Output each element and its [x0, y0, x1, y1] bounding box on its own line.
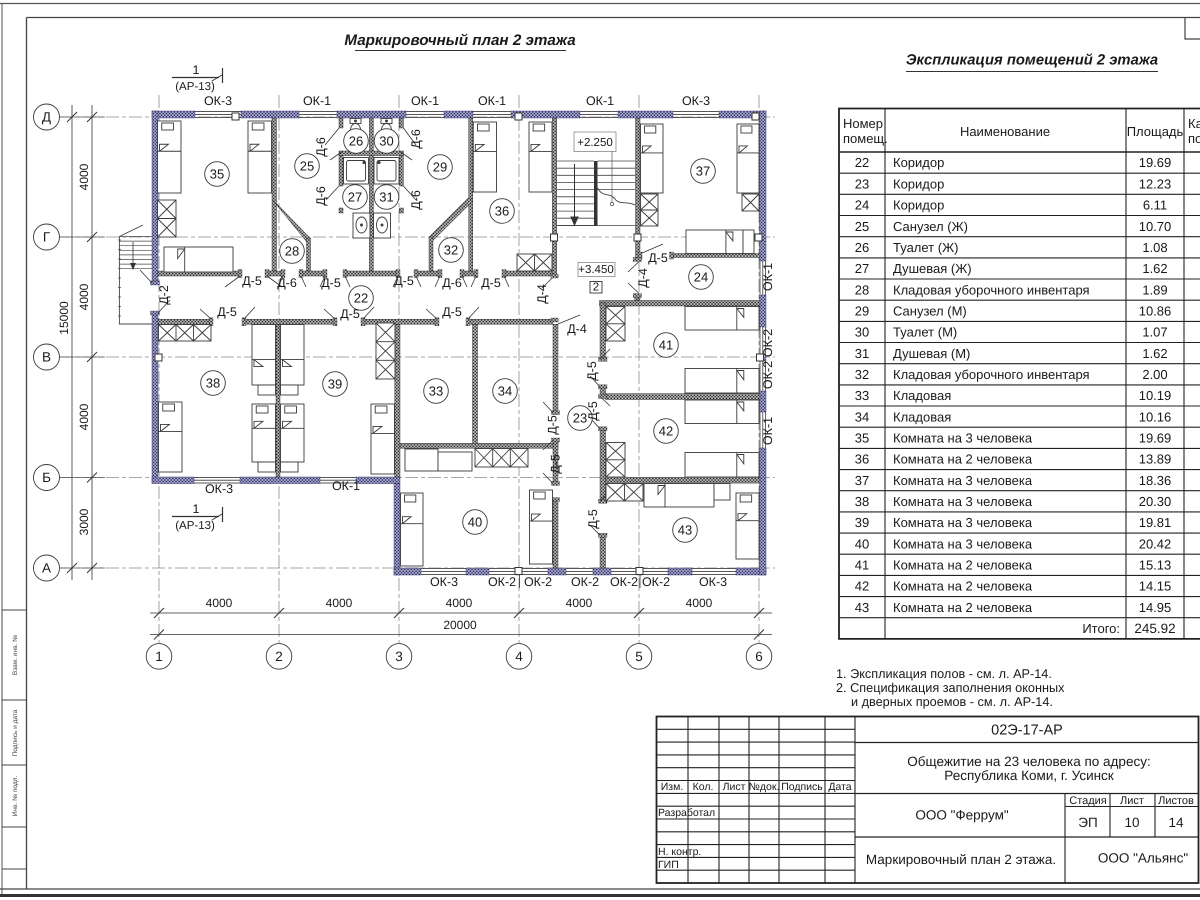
- svg-text:25: 25: [300, 159, 314, 174]
- svg-text:ОК-1: ОК-1: [478, 94, 506, 108]
- svg-text:4000: 4000: [446, 596, 473, 610]
- svg-text:19.69: 19.69: [1139, 155, 1172, 170]
- svg-text:34: 34: [855, 409, 869, 424]
- svg-text:33: 33: [855, 388, 869, 403]
- svg-text:Душевая (М): Душевая (М): [893, 346, 970, 361]
- svg-text:Маркировочный план 2 этажа: Маркировочный план 2 этажа: [344, 32, 575, 49]
- svg-text:Н. контр.: Н. контр.: [658, 846, 701, 858]
- svg-text:ОК-2: ОК-2: [761, 361, 775, 389]
- svg-text:по: по: [1188, 131, 1200, 146]
- svg-text:Дата: Дата: [828, 781, 851, 793]
- svg-text:Кладовая уборочного инвентаря: Кладовая уборочного инвентаря: [893, 282, 1090, 297]
- svg-text:ОК-2: ОК-2: [642, 575, 670, 589]
- svg-text:23: 23: [855, 176, 869, 191]
- svg-text:1: 1: [193, 502, 200, 516]
- svg-text:Д: Д: [42, 110, 51, 125]
- svg-text:25: 25: [855, 219, 869, 234]
- svg-text:1.07: 1.07: [1142, 325, 1167, 340]
- svg-text:43: 43: [855, 600, 869, 615]
- svg-text:Коридор: Коридор: [893, 176, 944, 191]
- svg-text:32: 32: [855, 367, 869, 382]
- svg-text:32: 32: [444, 243, 458, 258]
- svg-text:Маркировочный план 2 этажа.: Маркировочный план 2 этажа.: [866, 852, 1056, 867]
- svg-text:4000: 4000: [566, 596, 593, 610]
- svg-text:Кладовая: Кладовая: [893, 388, 951, 403]
- svg-text:33: 33: [429, 384, 443, 399]
- svg-text:Комната на 2 человека: Комната на 2 человека: [893, 579, 1033, 594]
- svg-text:Разработал: Разработал: [658, 807, 715, 819]
- svg-text:37: 37: [855, 473, 869, 488]
- svg-text:1.62: 1.62: [1142, 261, 1167, 276]
- svg-text:20.30: 20.30: [1139, 494, 1172, 509]
- svg-text:38: 38: [206, 376, 220, 391]
- svg-text:Изм.: Изм.: [661, 781, 684, 793]
- svg-text:Коридор: Коридор: [893, 198, 944, 213]
- svg-text:Комната на 2 человека: Комната на 2 человека: [893, 600, 1033, 615]
- svg-text:Комната на 2 человека: Комната на 2 человека: [893, 558, 1033, 573]
- svg-text:+2.250: +2.250: [577, 137, 613, 149]
- svg-text:Экспликация помещений 2 этажа: Экспликация помещений 2 этажа: [906, 53, 1158, 69]
- svg-text:2: 2: [275, 649, 283, 664]
- svg-text:Д-4: Д-4: [636, 268, 650, 288]
- svg-text:Комната на 3 человека: Комната на 3 человека: [893, 473, 1033, 488]
- svg-text:ГИП: ГИП: [658, 859, 679, 871]
- svg-text:Д-5: Д-5: [549, 454, 563, 474]
- svg-text:5: 5: [635, 649, 643, 664]
- svg-text:В: В: [42, 350, 51, 365]
- svg-text:Листов: Листов: [1158, 795, 1194, 807]
- svg-text:Комната на 3 человека: Комната на 3 человека: [893, 494, 1033, 509]
- svg-text:29: 29: [433, 160, 447, 175]
- svg-text:15.13: 15.13: [1139, 558, 1172, 573]
- svg-text:Общежитие на 23 человека по ад: Общежитие на 23 человека по адресу:: [907, 754, 1150, 769]
- svg-text:36: 36: [855, 452, 869, 467]
- svg-text:4000: 4000: [77, 283, 91, 310]
- svg-text:№док.: №док.: [749, 781, 780, 793]
- svg-text:4000: 4000: [77, 163, 91, 190]
- svg-text:(АР-13): (АР-13): [175, 81, 215, 93]
- svg-text:Площадь: Площадь: [1127, 124, 1184, 139]
- svg-text:Санузел (М): Санузел (М): [893, 303, 967, 318]
- svg-text:А: А: [42, 561, 51, 576]
- svg-text:Д-6: Д-6: [442, 276, 462, 290]
- svg-text:26: 26: [349, 134, 363, 149]
- svg-text:Д-5: Д-5: [481, 276, 501, 290]
- svg-text:15000: 15000: [57, 301, 71, 335]
- svg-text:ООО "Феррум": ООО "Феррум": [915, 808, 1009, 823]
- svg-text:+3.450: +3.450: [578, 264, 614, 276]
- svg-text:35: 35: [855, 431, 869, 446]
- svg-text:Инв. № подл.: Инв. № подл.: [12, 776, 19, 817]
- svg-text:Душевая (Ж): Душевая (Ж): [893, 261, 972, 276]
- svg-text:41: 41: [659, 338, 673, 353]
- svg-text:14: 14: [1168, 815, 1184, 830]
- svg-text:Д-5: Д-5: [648, 251, 668, 265]
- svg-text:1.62: 1.62: [1142, 346, 1167, 361]
- svg-text:Д-5: Д-5: [585, 361, 599, 381]
- svg-text:ОК-3: ОК-3: [205, 482, 233, 496]
- svg-text:22: 22: [855, 155, 869, 170]
- svg-text:27: 27: [855, 261, 869, 276]
- svg-text:ОК-3: ОК-3: [204, 94, 232, 108]
- svg-text:ЭП: ЭП: [1078, 815, 1097, 830]
- svg-text:Д-5: Д-5: [321, 276, 341, 290]
- svg-text:02Э-17-АР: 02Э-17-АР: [991, 723, 1063, 739]
- svg-text:Коридор: Коридор: [893, 155, 944, 170]
- svg-text:ОК-2: ОК-2: [761, 329, 775, 357]
- svg-text:Подпись: Подпись: [781, 781, 823, 793]
- svg-text:ОК-2: ОК-2: [571, 575, 599, 589]
- svg-text:Подпись и дата: Подпись и дата: [12, 709, 19, 756]
- svg-text:Д-5: Д-5: [242, 274, 262, 288]
- svg-text:31: 31: [379, 190, 393, 205]
- svg-text:10.86: 10.86: [1139, 303, 1172, 318]
- svg-text:Стадия: Стадия: [1069, 795, 1107, 807]
- svg-text:29: 29: [855, 303, 869, 318]
- svg-text:Республика Коми, г. Усинск: Республика Коми, г. Усинск: [944, 768, 1114, 783]
- svg-text:Г: Г: [43, 230, 51, 245]
- svg-text:2: 2: [593, 282, 599, 294]
- svg-text:20.42: 20.42: [1139, 536, 1172, 551]
- svg-text:40: 40: [468, 515, 482, 530]
- svg-text:40: 40: [855, 536, 869, 551]
- svg-text:36: 36: [495, 204, 509, 219]
- svg-text:Кладовая уборочного инвентаря: Кладовая уборочного инвентаря: [893, 367, 1090, 382]
- svg-text:Туалет (Ж): Туалет (Ж): [893, 240, 958, 255]
- svg-text:42: 42: [659, 424, 673, 439]
- svg-text:22: 22: [354, 291, 368, 306]
- svg-text:ОК-1: ОК-1: [761, 263, 775, 291]
- svg-text:37: 37: [696, 164, 710, 179]
- svg-text:4: 4: [515, 649, 523, 664]
- svg-text:Комната на 3 человека: Комната на 3 человека: [893, 536, 1033, 551]
- svg-text:Итого:: Итого:: [1082, 621, 1120, 636]
- svg-text:1: 1: [155, 649, 163, 664]
- svg-text:Д-5: Д-5: [217, 305, 237, 319]
- svg-text:Д-5: Д-5: [442, 305, 462, 319]
- svg-text:39: 39: [855, 515, 869, 530]
- svg-text:ОК-2: ОК-2: [524, 575, 552, 589]
- svg-text:Д-5: Д-5: [546, 415, 560, 435]
- svg-text:43: 43: [678, 523, 692, 538]
- svg-text:ОК-3: ОК-3: [699, 575, 727, 589]
- svg-text:42: 42: [855, 579, 869, 594]
- svg-text:12.23: 12.23: [1139, 176, 1172, 191]
- svg-text:1. Экспликация полов - см. л.: 1. Экспликация полов - см. л. АР-14.: [836, 667, 1052, 681]
- svg-text:18.36: 18.36: [1139, 473, 1172, 488]
- svg-text:28: 28: [855, 282, 869, 297]
- svg-text:30: 30: [855, 325, 869, 340]
- svg-text:3: 3: [395, 649, 403, 664]
- svg-text:1.08: 1.08: [1142, 240, 1167, 255]
- svg-text:10.70: 10.70: [1139, 219, 1172, 234]
- svg-text:20000: 20000: [443, 618, 477, 632]
- svg-text:Б: Б: [42, 470, 51, 485]
- svg-text:ОК-1: ОК-1: [586, 94, 614, 108]
- svg-text:4000: 4000: [686, 596, 713, 610]
- svg-text:Д-5: Д-5: [586, 509, 600, 529]
- svg-text:Лист: Лист: [1120, 795, 1144, 807]
- svg-text:и дверных проемов - см. л. АР-: и дверных проемов - см. л. АР-14.: [851, 695, 1053, 709]
- svg-text:Д-6: Д-6: [409, 129, 423, 149]
- svg-text:2.00: 2.00: [1142, 367, 1167, 382]
- svg-text:Взам. инв. №: Взам. инв. №: [12, 635, 19, 675]
- svg-text:Комната на 3 человека: Комната на 3 человека: [893, 515, 1033, 530]
- svg-text:(АР-13): (АР-13): [175, 520, 215, 532]
- svg-text:Наименование: Наименование: [960, 124, 1050, 139]
- svg-text:4000: 4000: [77, 403, 91, 430]
- svg-text:1.89: 1.89: [1142, 282, 1167, 297]
- svg-text:39: 39: [328, 377, 342, 392]
- svg-text:26: 26: [855, 240, 869, 255]
- svg-text:1: 1: [193, 63, 200, 77]
- svg-text:4000: 4000: [206, 596, 233, 610]
- svg-text:ОК-1: ОК-1: [761, 417, 775, 445]
- svg-text:ОК-2: ОК-2: [610, 575, 638, 589]
- svg-text:Комната на 2 человека: Комната на 2 человека: [893, 452, 1033, 467]
- svg-text:41: 41: [855, 558, 869, 573]
- svg-text:Д-6: Д-6: [409, 190, 423, 210]
- svg-text:34: 34: [498, 384, 512, 399]
- svg-text:Кол.: Кол.: [693, 781, 714, 793]
- svg-text:Д-6: Д-6: [314, 186, 328, 206]
- svg-text:30: 30: [379, 134, 393, 149]
- svg-text:245.92: 245.92: [1134, 621, 1175, 636]
- svg-text:6.11: 6.11: [1143, 198, 1167, 213]
- svg-text:ОК-3: ОК-3: [430, 575, 458, 589]
- svg-text:Лист: Лист: [723, 781, 746, 793]
- svg-text:13.89: 13.89: [1139, 452, 1172, 467]
- svg-text:19.81: 19.81: [1139, 515, 1172, 530]
- svg-text:27: 27: [348, 190, 362, 205]
- svg-text:Д-5: Д-5: [586, 401, 600, 421]
- svg-text:ОК-2: ОК-2: [488, 575, 516, 589]
- svg-text:Д-5: Д-5: [340, 307, 360, 321]
- svg-text:Ка: Ка: [1188, 116, 1200, 131]
- svg-text:Комната на 3 человека: Комната на 3 человека: [893, 431, 1033, 446]
- svg-text:4000: 4000: [326, 596, 353, 610]
- svg-text:31: 31: [855, 346, 869, 361]
- svg-text:ОК-1: ОК-1: [411, 94, 439, 108]
- svg-text:Туалет (М): Туалет (М): [893, 325, 957, 340]
- svg-text:Кладовая: Кладовая: [893, 409, 951, 424]
- svg-text:28: 28: [285, 244, 299, 259]
- svg-text:Номер: Номер: [843, 116, 883, 131]
- svg-text:Д-2: Д-2: [157, 285, 171, 305]
- svg-text:помещ.: помещ.: [843, 131, 888, 146]
- svg-text:Д-4: Д-4: [535, 284, 549, 304]
- svg-text:ОК-1: ОК-1: [303, 94, 331, 108]
- svg-text:14.95: 14.95: [1139, 600, 1172, 615]
- svg-text:Д-5: Д-5: [394, 274, 414, 288]
- svg-text:2. Спецификация заполнения око: 2. Спецификация заполнения оконных: [836, 681, 1065, 695]
- svg-text:ООО "Альянс": ООО "Альянс": [1098, 851, 1188, 866]
- svg-text:Д-6: Д-6: [277, 276, 297, 290]
- svg-text:24: 24: [855, 198, 869, 213]
- svg-text:10.16: 10.16: [1139, 409, 1172, 424]
- svg-text:38: 38: [855, 494, 869, 509]
- svg-text:ОК-1: ОК-1: [332, 479, 360, 493]
- svg-text:14.15: 14.15: [1139, 579, 1172, 594]
- svg-text:10.19: 10.19: [1139, 388, 1172, 403]
- svg-text:19.69: 19.69: [1139, 431, 1172, 446]
- svg-text:24: 24: [694, 270, 708, 285]
- svg-text:3000: 3000: [77, 508, 91, 535]
- svg-text:Санузел (Ж): Санузел (Ж): [893, 219, 968, 234]
- svg-text:ОК-3: ОК-3: [682, 94, 710, 108]
- svg-text:35: 35: [210, 167, 224, 182]
- svg-text:10: 10: [1124, 815, 1139, 830]
- svg-text:6: 6: [755, 649, 763, 664]
- svg-text:Д-4: Д-4: [567, 322, 587, 336]
- svg-text:Д-6: Д-6: [314, 137, 328, 157]
